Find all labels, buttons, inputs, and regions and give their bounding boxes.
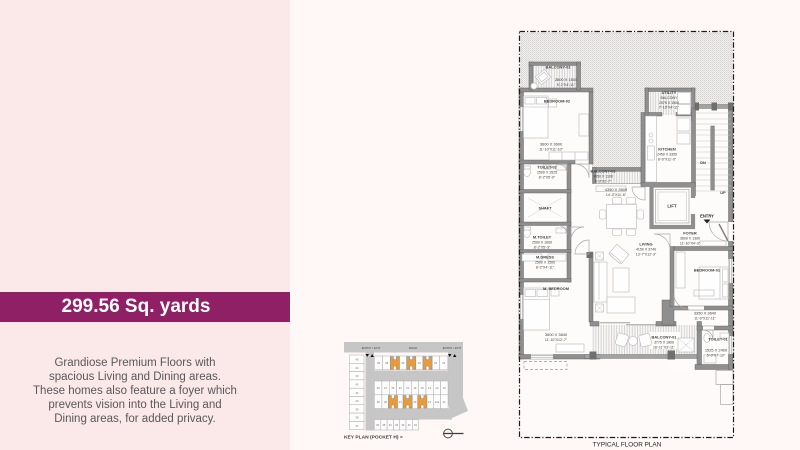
svg-text:11'-10"X11'-10": 11'-10"X11'-10" (539, 147, 564, 151)
svg-text:ENTRY: ENTRY (700, 214, 714, 219)
svg-text:3775 X 1800: 3775 X 1800 (654, 340, 674, 344)
svg-text:TYPICAL FLOOR PLAN: TYPICAL FLOOR PLAN (593, 442, 662, 449)
svg-text:8'-2"X5'-0": 8'-2"X5'-0" (539, 175, 556, 179)
svg-text:3050 X 1100: 3050 X 1100 (593, 174, 613, 178)
svg-text:8'-0"X11'-0": 8'-0"X11'-0" (658, 157, 677, 161)
svg-text:BALCONY-03: BALCONY-03 (591, 169, 617, 174)
svg-text:M.TOILET: M.TOILET (533, 235, 552, 240)
svg-text:7'-10"X4'-11": 7'-10"X4'-11" (659, 106, 680, 110)
svg-text:UP: UP (720, 190, 726, 195)
svg-text:5'-0"X7'-10": 5'-0"X7'-10" (707, 353, 726, 357)
svg-text:11'-10"X12'-7": 11'-10"X12'-7" (545, 338, 568, 342)
svg-text:13'-7"X12'-3": 13'-7"X12'-3" (636, 252, 657, 256)
svg-text:ENTRY / EXIT: ENTRY / EXIT (443, 346, 462, 350)
svg-text:KEY PLAN (POCKET H) >: KEY PLAN (POCKET H) > (344, 435, 403, 441)
svg-text:UTILITY: UTILITY (662, 90, 677, 95)
svg-text:16'-11"X3'-11": 16'-11"X3'-11" (653, 345, 676, 349)
svg-text:BEDROOM-01: BEDROOM-01 (694, 268, 721, 273)
svg-text:3600 X 3840: 3600 X 3840 (545, 332, 568, 337)
svg-text:8'-2"X4'-11": 8'-2"X4'-11" (536, 265, 555, 269)
svg-text:9'-2"X4'-11": 9'-2"X4'-11" (557, 83, 576, 87)
svg-text:14'-3"X11'-6": 14'-3"X11'-6" (606, 193, 627, 197)
svg-text:2500 X 1525: 2500 X 1525 (537, 170, 557, 174)
svg-text:BALCONY-01: BALCONY-01 (652, 335, 678, 340)
svg-text:3350 X 3640: 3350 X 3640 (694, 311, 717, 316)
svg-text:LIVING: LIVING (639, 242, 652, 247)
svg-text:SHAFT: SHAFT (538, 206, 552, 211)
svg-text:2975 X 1500: 2975 X 1500 (659, 101, 679, 105)
svg-text:ROAD: ROAD (409, 346, 417, 350)
svg-text:11'-0"X11'-11": 11'-0"X11'-11" (694, 316, 716, 320)
svg-text:FOYER: FOYER (683, 231, 697, 236)
svg-text:2500 X 1600: 2500 X 1600 (532, 240, 552, 244)
svg-text:M. BEDROOM: M. BEDROOM (543, 286, 570, 291)
svg-text:4150 X 3740: 4150 X 3740 (636, 247, 656, 251)
svg-text:M.DRESS: M.DRESS (536, 255, 554, 260)
svg-text:BALCONY-02: BALCONY-02 (546, 65, 572, 70)
svg-text:2450 X 3350: 2450 X 3350 (657, 152, 677, 156)
svg-text:TOILET-02: TOILET-02 (537, 165, 557, 170)
svg-text:1525 X 2400: 1525 X 2400 (705, 348, 728, 353)
svg-text:4350 X 3500: 4350 X 3500 (605, 187, 628, 192)
svg-text:TOILET-01: TOILET-01 (708, 337, 728, 342)
svg-text:2500 X 1500: 2500 X 1500 (535, 260, 555, 264)
svg-text:2800 X 1500: 2800 X 1500 (555, 77, 578, 82)
svg-text:DN: DN (700, 160, 706, 165)
svg-text:6'-9"X2'-7": 6'-9"X2'-7" (595, 179, 612, 183)
svg-text:8'-2"X5'-3": 8'-2"X5'-3" (534, 245, 551, 249)
svg-text:3600 X 3600: 3600 X 3600 (540, 142, 563, 147)
svg-text:12a: 12a (435, 400, 440, 404)
svg-text:BALCONY: BALCONY (661, 96, 679, 100)
svg-text:LIFT: LIFT (667, 204, 677, 209)
svg-text:BEDROOM-02: BEDROOM-02 (544, 99, 571, 104)
svg-text:11'-10"X4'-3": 11'-10"X4'-3" (680, 241, 701, 245)
svg-text:3600 X 1300: 3600 X 1300 (680, 236, 700, 240)
svg-text:KITCHEN: KITCHEN (658, 147, 676, 152)
svg-text:ENTRY / EXIT: ENTRY / EXIT (362, 346, 381, 350)
